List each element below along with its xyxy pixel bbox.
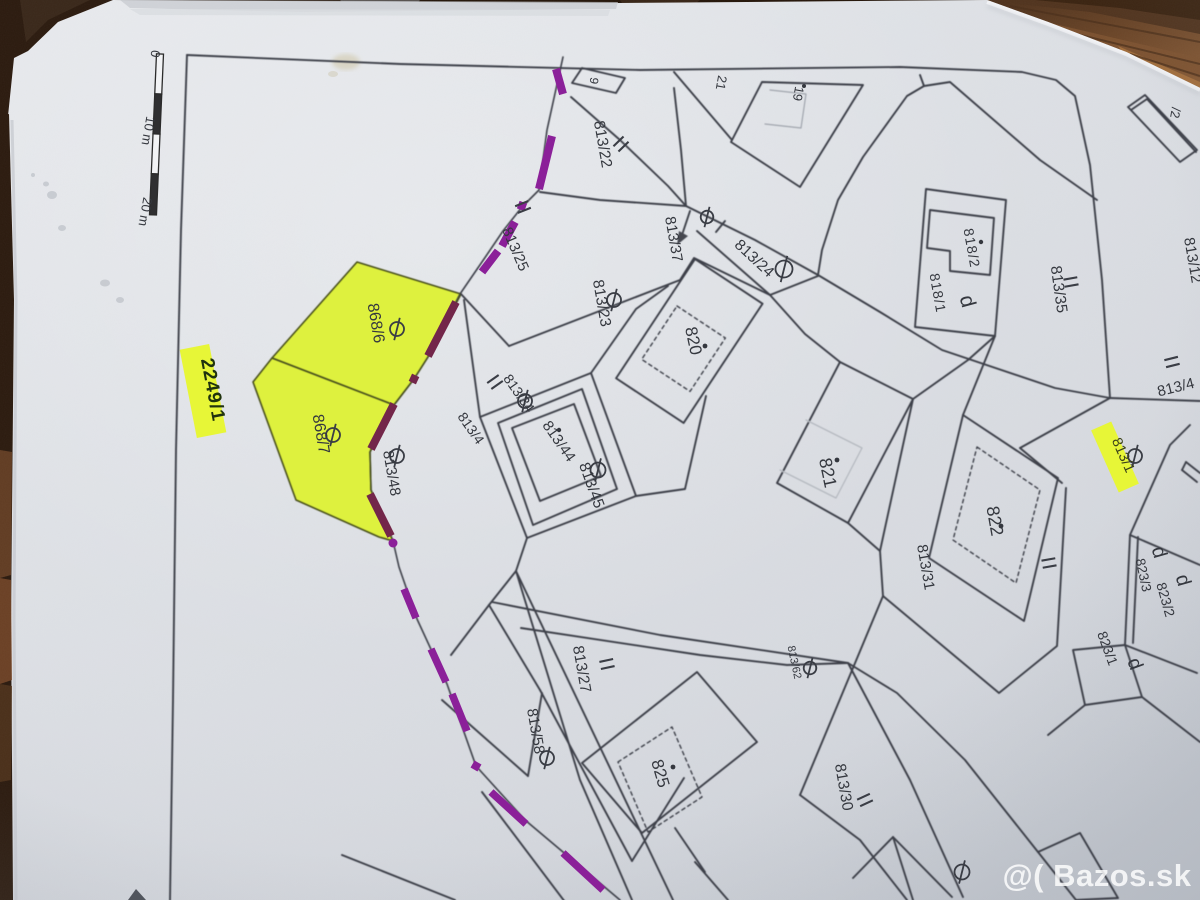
svg-text:@( Bazos.sk: @( Bazos.sk xyxy=(1002,858,1191,893)
svg-text:21: 21 xyxy=(713,74,730,91)
svg-text:19: 19 xyxy=(790,85,807,102)
